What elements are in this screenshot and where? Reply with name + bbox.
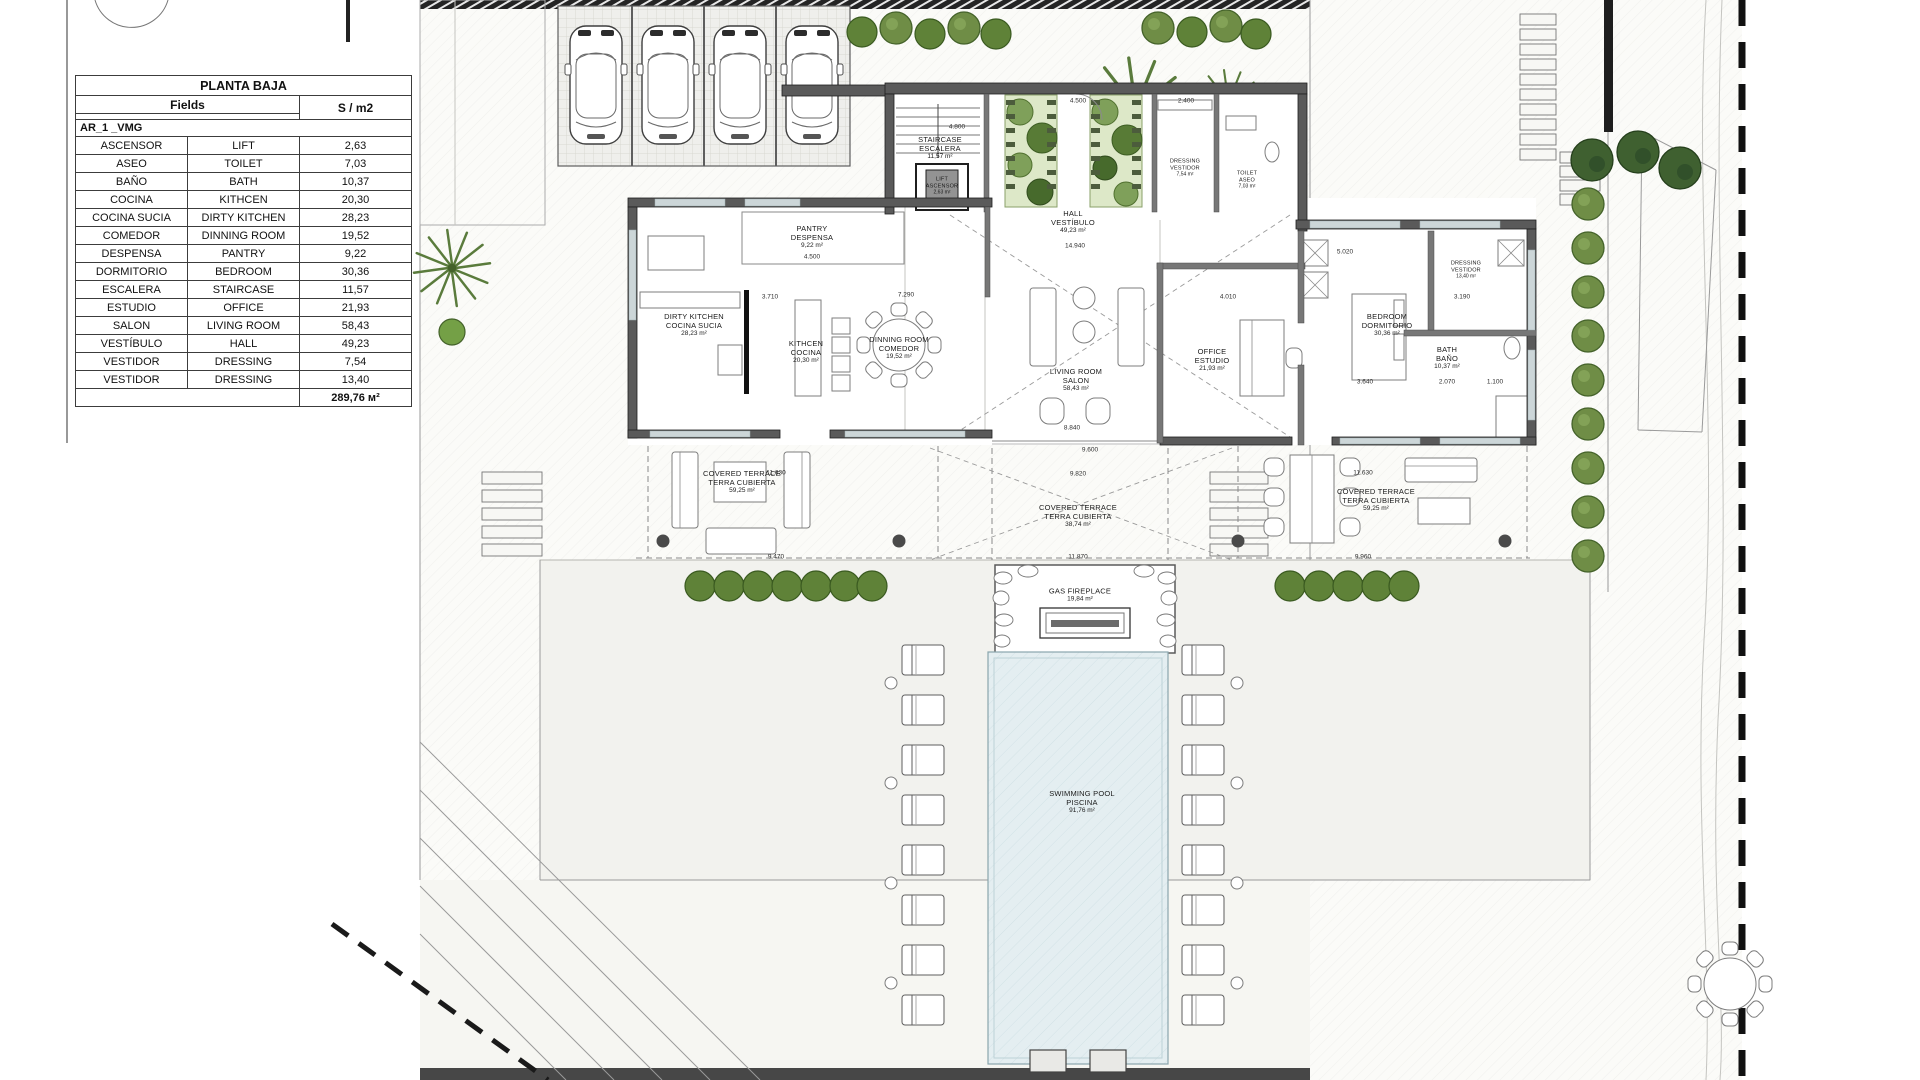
dimension-label: 4.010: [1220, 294, 1236, 301]
dimension-label: 1.100: [1487, 379, 1503, 386]
car-icon: [709, 26, 771, 144]
group-label: AR_1 _VMG: [76, 120, 412, 137]
dimension-label: 2.070: [1439, 379, 1455, 386]
table-header-row: Fields S / m2: [76, 96, 412, 114]
table-total-row: 289,76 м²: [76, 389, 412, 407]
dimension-label: 4.500: [1070, 98, 1086, 105]
room-label-dressing-right: DRESSINGVESTIDOR13,40 m²: [1451, 260, 1481, 279]
dimension-label: 8.840: [1064, 425, 1080, 432]
room-label-living-room: LIVING ROOMSALON58,43 m²: [1050, 367, 1102, 393]
plan-sheet: PLANTA BAJA Fields S / m2 AR_1 _VMG ASCE…: [0, 0, 1920, 1080]
dimension-label: 11.630: [1353, 470, 1372, 477]
room-label-terrace-right: COVERED TERRACETERRA CUBIERTA59,25 m²: [1337, 487, 1415, 513]
room-label-hall: HALLVESTÍBULO49,23 m²: [1051, 209, 1095, 235]
room-label-dirty-kitchen: DIRTY KITCHENCOCINA SUCIA28,23 m²: [664, 312, 724, 338]
dimension-label: 2.400: [1178, 98, 1194, 105]
table-row: ESCALERASTAIRCASE11,57: [76, 281, 412, 299]
room-label-fireplace: GAS FIREPLACE19,84 m²: [1049, 587, 1111, 604]
room-label-pool: SWIMMING POOLPISCINA91,76 m²: [1049, 789, 1115, 815]
table-row: DORMITORIOBEDROOM30,36: [76, 263, 412, 281]
table-row: ASEOTOILET7,03: [76, 155, 412, 173]
table-row: COCINAKITHCEN20,30: [76, 191, 412, 209]
fields-header: Fields: [76, 96, 300, 114]
table-row: DESPENSAPANTRY9,22: [76, 245, 412, 263]
table-row: ESTUDIOOFFICE21,93: [76, 299, 412, 317]
dimension-label: 11.630: [766, 470, 785, 477]
table-row: COCINA SUCIADIRTY KITCHEN28,23: [76, 209, 412, 227]
table-row: VESTIDORDRESSING13,40: [76, 371, 412, 389]
dimension-label: 4.800: [949, 124, 965, 131]
room-label-dressing-top: DRESSINGVESTIDOR7,54 m²: [1170, 158, 1200, 177]
table-row: ASCENSORLIFT2,63: [76, 137, 412, 155]
room-label-pantry: PANTRYDESPENSA9,22 m²: [791, 224, 833, 250]
dimension-label: 14.940: [1065, 243, 1085, 250]
table-title-row: PLANTA BAJA: [76, 76, 412, 96]
room-label-kitchen: KITHCENCOCINA20,30 m²: [789, 339, 823, 365]
dimension-label: 3.710: [762, 294, 778, 301]
room-label-lift: LIFTASCENSOR2,63 m²: [926, 176, 958, 195]
table-title: PLANTA BAJA: [76, 76, 412, 96]
table-row: VESTIDORDRESSING7,54: [76, 353, 412, 371]
room-label-staircase: STAIRCASEESCALERA11,57 m²: [918, 135, 962, 161]
top-boundary-hatch: [420, 0, 1310, 9]
bottom-edge-bar: [420, 1068, 1310, 1080]
dimension-label: 9.600: [1082, 447, 1098, 454]
dimension-label: 4.500: [804, 254, 820, 261]
table-row: COMEDORDINNING ROOM19,52: [76, 227, 412, 245]
room-label-dining-room: DINNING ROOMCOMEDOR19,52 m²: [869, 335, 928, 361]
dimension-label: 11.870: [1068, 554, 1087, 561]
room-label-bedroom: BEDROOMDORMITORIO30,36 m²: [1362, 312, 1413, 338]
gas-fireplace: [993, 565, 1177, 653]
dimension-label: 3.190: [1454, 294, 1470, 301]
unit-header: S / m2: [300, 96, 412, 120]
table-row: VESTÍBULOHALL49,23: [76, 335, 412, 353]
table-group-row: AR_1 _VMG: [76, 120, 412, 137]
total-area: 289,76 м²: [300, 389, 412, 407]
dimension-label: 5.020: [1337, 249, 1353, 256]
car-icon: [565, 26, 627, 144]
dimension-label: 9.470: [768, 554, 784, 561]
table-row: SALONLIVING ROOM58,43: [76, 317, 412, 335]
room-label-toilet: TOILETASEO7,03 m²: [1237, 170, 1257, 189]
dimension-label: 9.960: [1355, 554, 1371, 561]
room-label-terrace-center: COVERED TERRACETERRA CUBIERTA38,74 m²: [1039, 503, 1117, 529]
swimming-pool: [988, 652, 1168, 1072]
car-icon: [637, 26, 699, 144]
room-label-office: OFFICEESTUDIO21,93 m²: [1195, 347, 1230, 373]
dimension-label: 9.820: [1070, 471, 1086, 478]
area-schedule-table: PLANTA BAJA Fields S / m2 AR_1 _VMG ASCE…: [75, 75, 412, 407]
dimension-label: 7.290: [898, 292, 914, 299]
dimension-label: 3.640: [1357, 379, 1373, 386]
room-label-bath: BATHBAÑO10,37 m²: [1434, 345, 1460, 371]
table-row: BAÑOBATH10,37: [76, 173, 412, 191]
